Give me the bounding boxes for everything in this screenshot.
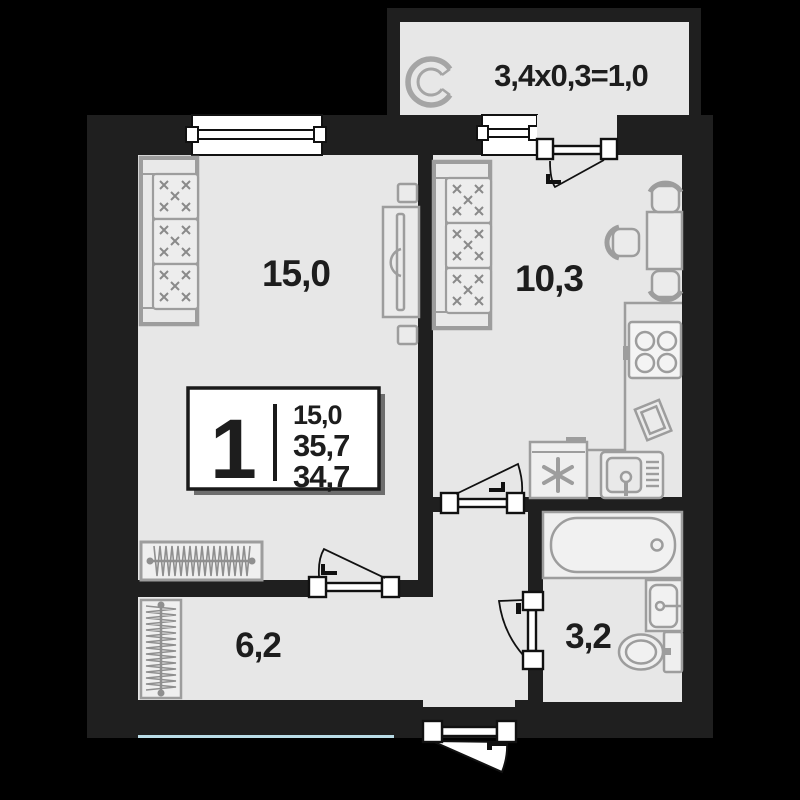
hallway-area-label: 6,2: [235, 626, 281, 665]
info-divider: [273, 404, 277, 481]
living-room-sofa: [140, 157, 198, 325]
info-living-area: 15,0: [293, 400, 342, 430]
kitchen-window: [477, 115, 540, 155]
floor-plan-canvas: 15,0 10,3 6,2 3,2 3,4x0,3=1,0 1 15,0 35,…: [0, 0, 800, 800]
toilet: [619, 632, 682, 672]
bathroom-sink: [646, 580, 682, 631]
living-room-area-label: 15,0: [262, 253, 330, 294]
info-box: 1 15,0 35,7 34,7: [188, 388, 385, 496]
wardrobe-hangers: [141, 542, 262, 580]
fridge: [530, 437, 587, 498]
facade-accent-line: [138, 735, 394, 738]
kitchen-sink: [601, 452, 663, 498]
living-room-window: [186, 115, 326, 155]
floor-plan-drawing: 15,0 10,3 6,2 3,2 3,4x0,3=1,0 1 15,0 35,…: [0, 0, 800, 800]
stove: [623, 322, 681, 378]
bathroom-area-label: 3,2: [565, 617, 611, 656]
balcony-area-label: 3,4x0,3=1,0: [494, 58, 648, 93]
info-total-area: 35,7: [293, 428, 349, 463]
kitchen-sofa: [433, 161, 491, 329]
corridor-floor: [433, 512, 528, 602]
bathtub: [543, 512, 682, 578]
kitchen-area-label: 10,3: [515, 258, 583, 299]
hallway-floor: [138, 597, 528, 700]
info-area-alt: 34,7: [293, 459, 349, 494]
hallway-closet: [141, 600, 181, 698]
info-rooms-count: 1: [210, 402, 256, 496]
